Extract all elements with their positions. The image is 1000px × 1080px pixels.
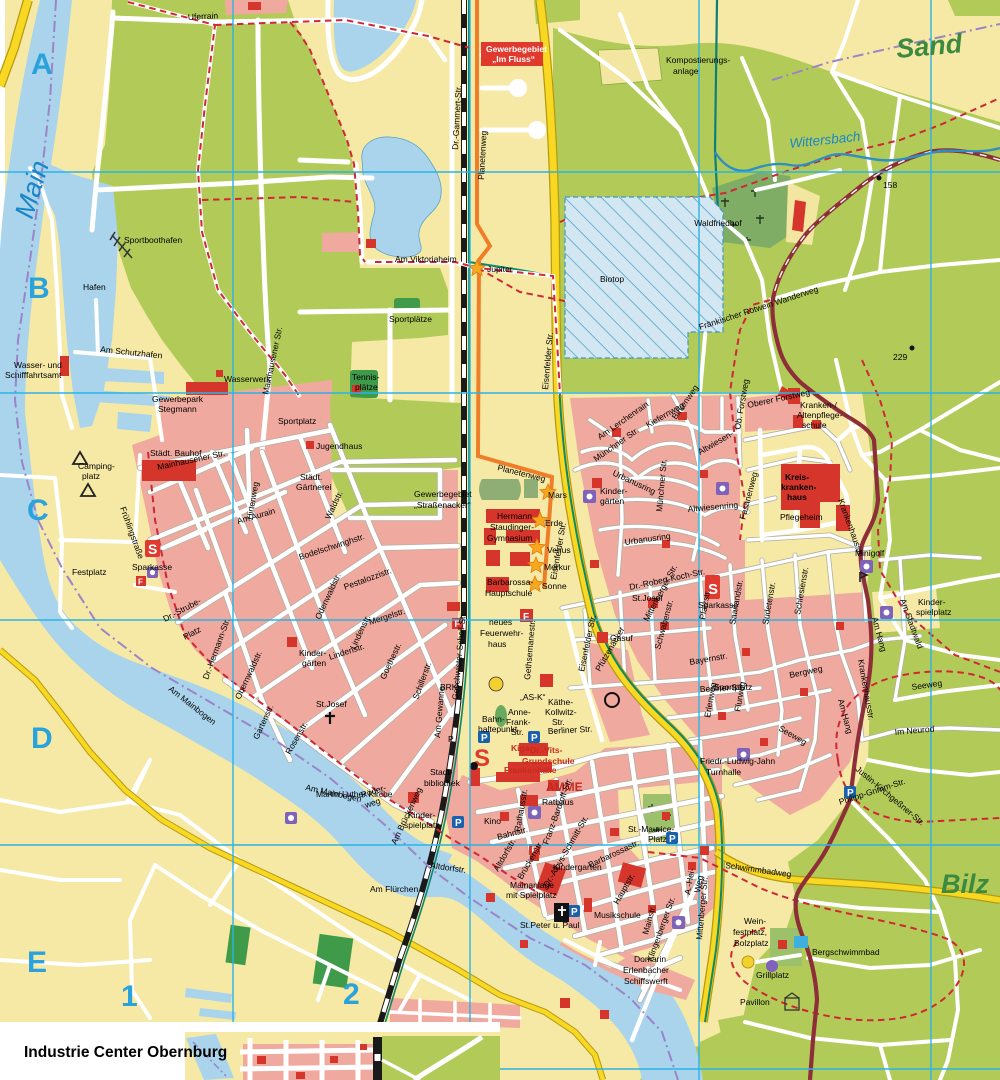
svg-text:mit Spielplatz: mit Spielplatz <box>506 890 557 900</box>
svg-text:gärten: gärten <box>600 496 624 506</box>
svg-text:Feuerwehr-: Feuerwehr- <box>480 628 524 638</box>
svg-text:Frank-: Frank- <box>506 717 531 727</box>
svg-text:Hafen: Hafen <box>83 282 106 292</box>
svg-text:Barbarossa-: Barbarossa- <box>487 577 533 587</box>
svg-text:Kinder-: Kinder- <box>918 597 946 607</box>
svg-text:Wasser- und: Wasser- und <box>14 360 62 370</box>
svg-text:Schifffahrtsamt: Schifffahrtsamt <box>5 370 62 380</box>
svg-text:Platz: Platz <box>648 834 667 844</box>
svg-text:Hauptschule: Hauptschule <box>485 588 533 598</box>
svg-text:kranken-: kranken- <box>781 482 817 492</box>
svg-text:1: 1 <box>121 980 138 1013</box>
svg-text:Musikschule: Musikschule <box>594 910 641 920</box>
svg-text:Bolzplatz: Bolzplatz <box>734 938 769 948</box>
svg-text:Gärtnerei: Gärtnerei <box>296 482 332 492</box>
svg-text:plätze: plätze <box>355 382 378 392</box>
svg-text:Sparkasse: Sparkasse <box>132 562 172 572</box>
svg-text:Kranken-/: Kranken-/ <box>800 400 837 410</box>
svg-text:Bilz: Bilz <box>941 869 990 899</box>
svg-text:229: 229 <box>893 352 907 362</box>
svg-text:Sand: Sand <box>895 28 964 64</box>
svg-text:D: D <box>31 722 53 755</box>
svg-text:haus: haus <box>787 492 807 502</box>
svg-text:Bergschwimmbad: Bergschwimmbad <box>812 947 880 957</box>
svg-text:Wein-: Wein- <box>744 916 766 926</box>
svg-text:Kinder-: Kinder- <box>299 648 327 658</box>
svg-text:Anne-: Anne- <box>508 707 531 717</box>
svg-text:Kino: Kino <box>484 816 501 826</box>
svg-text:platz: platz <box>82 471 100 481</box>
svg-text:anlage: anlage <box>673 66 699 76</box>
svg-text:Sonne: Sonne <box>542 581 567 591</box>
svg-text:Kompostierungs-: Kompostierungs- <box>666 55 730 65</box>
svg-text:Hermann: Hermann <box>497 511 532 521</box>
svg-text:schule: schule <box>802 420 827 430</box>
svg-text:P: P <box>481 733 488 744</box>
svg-text:Tennis-: Tennis- <box>352 372 380 382</box>
svg-text:Sportplatz: Sportplatz <box>278 416 316 426</box>
svg-text:Pflegeheim: Pflegeheim <box>780 512 823 522</box>
svg-text:haus: haus <box>488 639 506 649</box>
svg-text:Stadt-: Stadt- <box>430 767 453 777</box>
svg-text:P: P <box>455 818 462 829</box>
svg-text:Käthe-: Käthe- <box>548 697 573 707</box>
svg-text:F: F <box>138 578 143 587</box>
svg-text:E: E <box>27 946 47 979</box>
svg-text:„Straßenacker“: „Straßenacker“ <box>414 500 471 510</box>
svg-text:Camping-: Camping- <box>78 461 115 471</box>
svg-text:Kollwitz-: Kollwitz- <box>545 707 577 717</box>
svg-text:Kinder-: Kinder- <box>600 486 628 496</box>
svg-text:P: P <box>448 734 454 744</box>
svg-text:Biotop: Biotop <box>600 274 624 284</box>
svg-text:S: S <box>148 541 157 557</box>
svg-text:St.Josef: St.Josef <box>316 699 347 709</box>
svg-text:„AS-K“: „AS-K“ <box>520 692 546 702</box>
svg-text:P: P <box>571 907 578 918</box>
svg-text:Bahn-: Bahn- <box>482 714 505 724</box>
svg-text:Erlenbacher: Erlenbacher <box>623 965 669 975</box>
svg-text:Sportplätze: Sportplätze <box>389 314 432 324</box>
svg-text:Gewerbegebiet: Gewerbegebiet <box>486 44 547 54</box>
svg-text:Altenpflege-: Altenpflege- <box>797 410 843 420</box>
svg-text:Industrie Center Obernburg: Industrie Center Obernburg <box>24 1044 227 1061</box>
svg-text:Frankenhalle: Frankenhalle <box>504 765 557 775</box>
svg-text:„Im Fluss“: „Im Fluss“ <box>492 54 535 64</box>
svg-text:St.Peter u. Paul: St.Peter u. Paul <box>520 920 580 930</box>
svg-text:Str.: Str. <box>511 727 524 737</box>
svg-text:bibliothek: bibliothek <box>424 778 461 788</box>
svg-text:Sportboothafen: Sportboothafen <box>124 235 182 245</box>
svg-text:2: 2 <box>343 978 360 1011</box>
svg-text:Pavillon: Pavillon <box>740 997 770 1007</box>
svg-text:Turnhalle: Turnhalle <box>706 767 741 777</box>
svg-text:gärten: gärten <box>302 658 326 668</box>
svg-text:Mars: Mars <box>548 490 567 500</box>
svg-text:Kiga: Kiga <box>511 743 530 753</box>
svg-text:Am Viktoriaheim: Am Viktoriaheim <box>395 254 457 264</box>
svg-text:neues: neues <box>489 617 512 627</box>
svg-text:Dr.-Vits-: Dr.-Vits- <box>530 745 563 755</box>
svg-text:Stegmann: Stegmann <box>158 404 197 414</box>
svg-text:Uferrain: Uferrain <box>188 10 219 22</box>
svg-text:Staudinger-: Staudinger- <box>490 522 534 532</box>
svg-text:St.-Maurice-: St.-Maurice- <box>628 824 674 834</box>
svg-text:Erde: Erde <box>545 518 563 528</box>
svg-text:Städt.: Städt. <box>300 472 322 482</box>
svg-text:Gymnasium: Gymnasium <box>487 533 532 543</box>
svg-text:Venus: Venus <box>547 545 571 555</box>
svg-text:158: 158 <box>883 180 897 190</box>
svg-text:Festplatz: Festplatz <box>72 567 107 577</box>
svg-text:Kreis-: Kreis- <box>785 472 809 482</box>
svg-text:C: C <box>27 494 49 527</box>
svg-text:Jugendhaus: Jugendhaus <box>316 441 362 451</box>
svg-text:B: B <box>28 272 50 305</box>
svg-text:spielplatz: spielplatz <box>916 607 951 617</box>
svg-text:Schiffswerft: Schiffswerft <box>624 976 668 986</box>
svg-text:festplatz,: festplatz, <box>733 927 767 937</box>
svg-text:Gewerbepark: Gewerbepark <box>152 394 204 404</box>
svg-text:Grillplatz: Grillplatz <box>756 970 789 980</box>
svg-text:P: P <box>669 834 676 845</box>
svg-text:Jupiter: Jupiter <box>487 264 513 274</box>
svg-text:Am Flürchen: Am Flürchen <box>370 884 418 894</box>
svg-text:P: P <box>531 733 538 744</box>
svg-text:spielplatz: spielplatz <box>404 820 439 830</box>
svg-text:Friedr.-Ludwig-Jahn: Friedr.-Ludwig-Jahn <box>700 756 775 766</box>
svg-text:Merkur: Merkur <box>544 562 571 572</box>
svg-text:Waldfriedhof: Waldfriedhof <box>694 218 742 228</box>
svg-text:Gewerbegebiet: Gewerbegebiet <box>414 489 472 499</box>
svg-text:A: A <box>31 48 53 81</box>
